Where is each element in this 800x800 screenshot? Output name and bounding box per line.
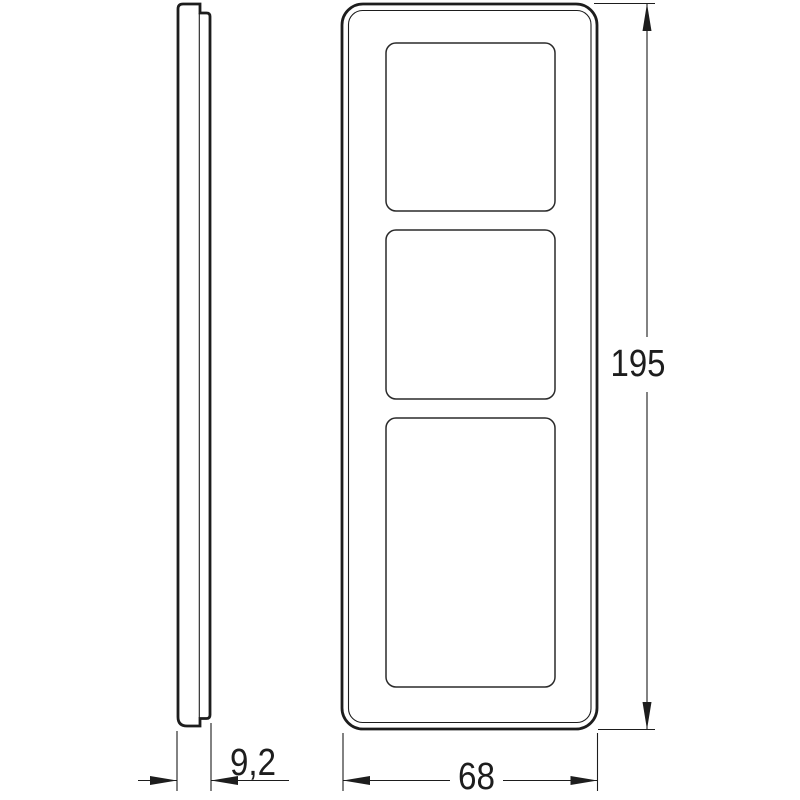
width-dim-arrow-right [571,776,598,785]
side-view-outline [178,4,210,726]
height-dim-label: 195 [611,343,666,385]
frame-window-3 [386,418,555,687]
width-dim-arrow-left [343,776,370,785]
height-dim-arrow-bottom [643,702,652,730]
height-dimension: 195 [594,4,666,730]
frame-technical-drawing: 195 68 9,2 [0,0,800,800]
depth-dim-arrow-left [150,776,177,785]
depth-dim-label: 9,2 [230,742,276,784]
frame-window-2 [386,230,555,399]
depth-dimension: 9,2 [138,723,289,791]
frame-window-1 [386,43,555,211]
drawing-canvas: 195 68 9,2 [0,0,800,800]
height-dim-arrow-top [643,4,652,32]
side-view [178,4,210,726]
width-dimension: 68 [343,733,598,798]
front-view [342,4,597,729]
width-dim-label: 68 [458,756,495,798]
